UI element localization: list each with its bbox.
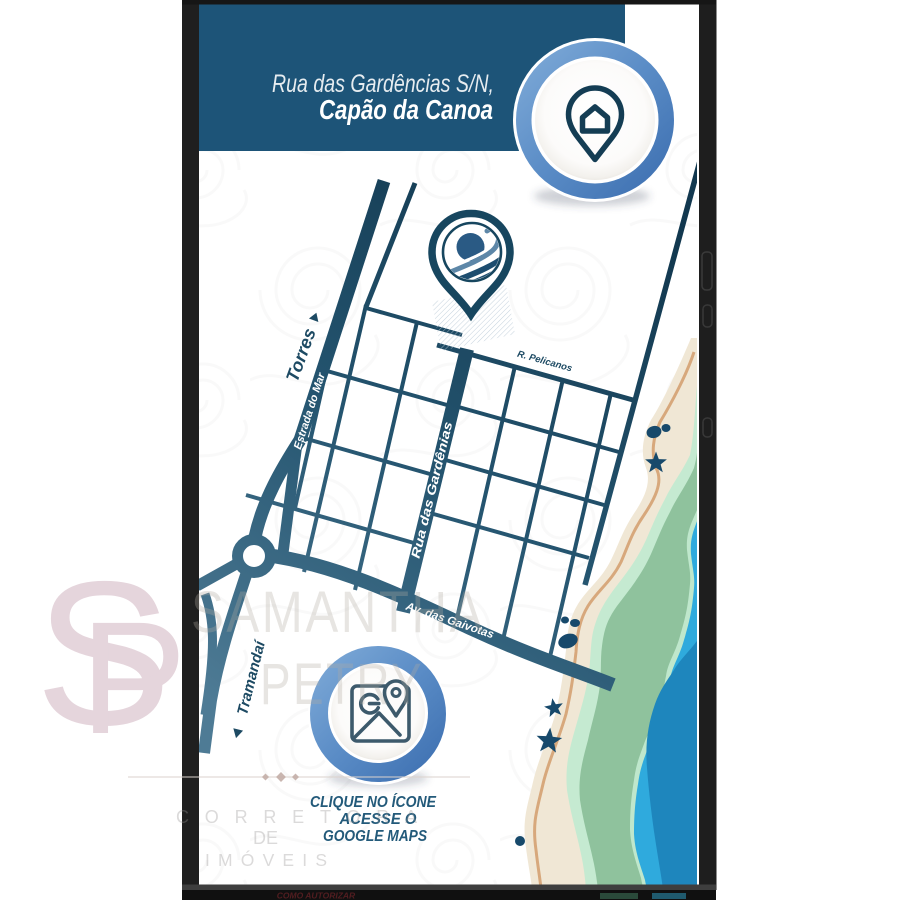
svg-text:DE: DE [253, 828, 293, 848]
svg-text:GOOGLE MAPS: GOOGLE MAPS [323, 828, 428, 845]
svg-text:CORRETORA: CORRETORA [176, 807, 432, 827]
svg-text:PETRY: PETRY [260, 652, 424, 717]
svg-text:COMO AUTORIZAR: COMO AUTORIZAR [277, 891, 356, 900]
svg-text:P: P [80, 588, 187, 767]
svg-text:IMÓVEIS: IMÓVEIS [205, 849, 337, 870]
svg-text:SAMANTHA: SAMANTHA [191, 580, 485, 645]
svg-text:Capão da Canoa: Capão da Canoa [319, 94, 493, 125]
